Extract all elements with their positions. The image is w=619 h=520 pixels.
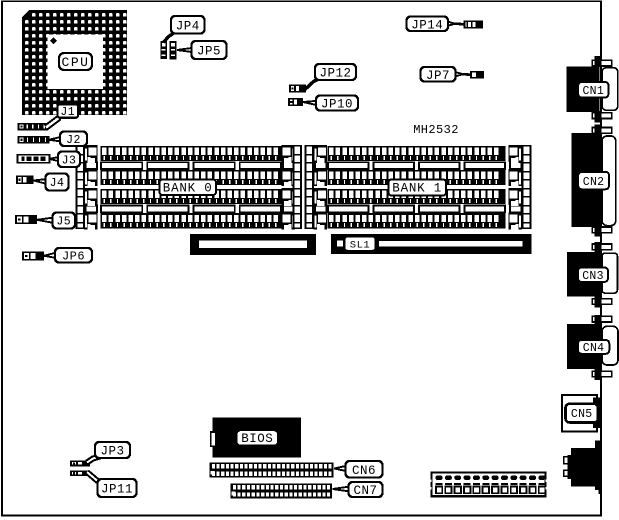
svg-text:JP5: JP5 [197, 45, 221, 59]
svg-text:J3: J3 [62, 154, 77, 167]
svg-text:J2: J2 [66, 134, 81, 147]
svg-text:BANK 0: BANK 0 [163, 181, 213, 195]
svg-text:JP14: JP14 [411, 18, 443, 32]
svg-text:CN1: CN1 [582, 85, 604, 98]
svg-text:JP6: JP6 [62, 250, 85, 264]
svg-text:J1: J1 [60, 106, 75, 119]
svg-text:CN5: CN5 [571, 408, 593, 421]
svg-text:CN4: CN4 [583, 342, 605, 355]
svg-text:CN2: CN2 [583, 176, 605, 189]
svg-text:SL1: SL1 [350, 239, 370, 251]
svg-text:JP11: JP11 [101, 483, 133, 497]
svg-text:BIOS: BIOS [241, 432, 273, 446]
svg-text:JP10: JP10 [321, 98, 353, 112]
svg-text:J4: J4 [50, 177, 65, 190]
svg-text:JP12: JP12 [319, 67, 351, 81]
svg-text:J5: J5 [56, 216, 71, 229]
svg-text:BANK 1: BANK 1 [392, 182, 442, 196]
svg-text:MH2532: MH2532 [413, 123, 459, 137]
svg-text:JP4: JP4 [176, 19, 200, 33]
svg-text:CN7: CN7 [353, 484, 377, 498]
svg-text:JP7: JP7 [426, 69, 450, 83]
svg-text:CN6: CN6 [352, 464, 376, 478]
svg-text:CPU: CPU [62, 55, 90, 70]
svg-text:CN3: CN3 [582, 270, 604, 283]
svg-text:JP3: JP3 [100, 445, 124, 459]
